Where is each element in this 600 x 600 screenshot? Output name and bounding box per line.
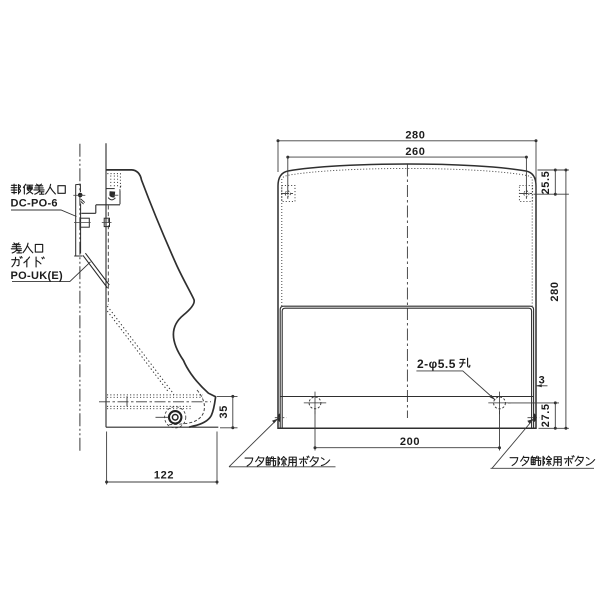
svg-text:280: 280	[549, 281, 561, 301]
svg-text:3: 3	[539, 374, 546, 386]
svg-text:35: 35	[218, 405, 230, 418]
svg-text:25.5: 25.5	[540, 171, 552, 195]
svg-text:2-φ5.5: 2-φ5.5	[417, 357, 456, 371]
svg-text:DC-PO-6: DC-PO-6	[11, 197, 58, 209]
svg-text:27.5: 27.5	[540, 403, 552, 427]
svg-text:200: 200	[400, 436, 420, 448]
svg-text:PO-UK(E): PO-UK(E)	[11, 270, 64, 282]
svg-text:122: 122	[154, 470, 174, 482]
svg-text:280: 280	[405, 130, 425, 142]
svg-text:260: 260	[405, 146, 425, 158]
